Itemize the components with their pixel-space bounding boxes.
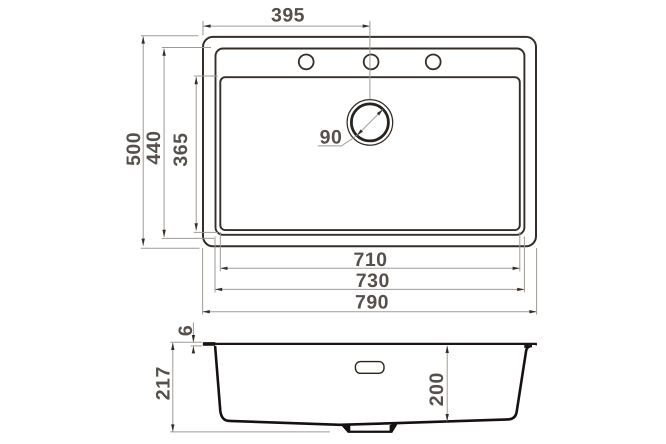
svg-text:6: 6 — [175, 325, 197, 336]
svg-text:395: 395 — [271, 4, 305, 26]
svg-text:217: 217 — [153, 366, 175, 400]
svg-text:90: 90 — [320, 127, 343, 149]
svg-text:710: 710 — [353, 249, 387, 271]
svg-text:730: 730 — [356, 270, 390, 292]
svg-text:440: 440 — [143, 131, 165, 165]
svg-text:200: 200 — [426, 372, 448, 406]
svg-text:790: 790 — [355, 292, 389, 314]
svg-text:500: 500 — [123, 132, 145, 166]
svg-text:365: 365 — [170, 133, 192, 167]
